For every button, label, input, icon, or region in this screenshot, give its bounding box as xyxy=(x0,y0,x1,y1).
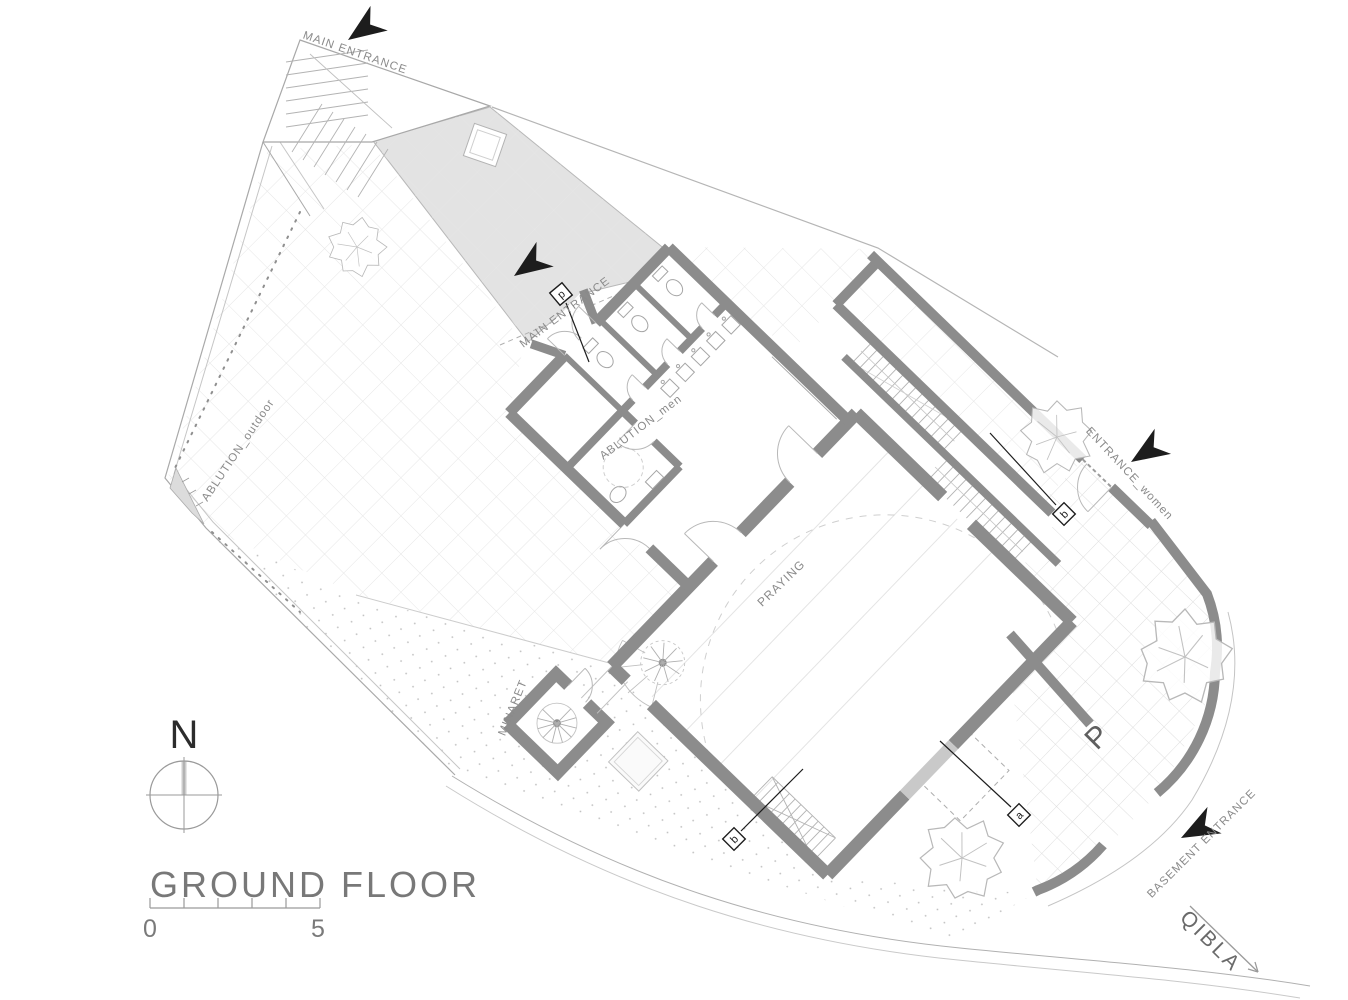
title-block: GROUND FLOOR 0 5 xyxy=(143,864,480,943)
section-marker-a: a xyxy=(1008,804,1031,827)
floor-plan-drawing: p b b a MAIN ENTRANCE MAIN ENTRANCE ABLU… xyxy=(0,0,1348,1000)
scale-end: 5 xyxy=(311,915,325,943)
scale-start: 0 xyxy=(143,915,157,943)
label-qibla: QIBLA xyxy=(1175,906,1246,977)
label-basement-entrance: BASEMENT ENTRANCE xyxy=(1145,787,1258,900)
drawing-title: GROUND FLOOR xyxy=(150,864,480,905)
qibla-indicator: QIBLA xyxy=(1175,906,1258,977)
north-compass: N xyxy=(146,713,222,833)
floor-plan-page: p b b a MAIN ENTRANCE MAIN ENTRANCE ABLU… xyxy=(0,0,1348,1000)
compass-north-label: N xyxy=(170,713,199,757)
